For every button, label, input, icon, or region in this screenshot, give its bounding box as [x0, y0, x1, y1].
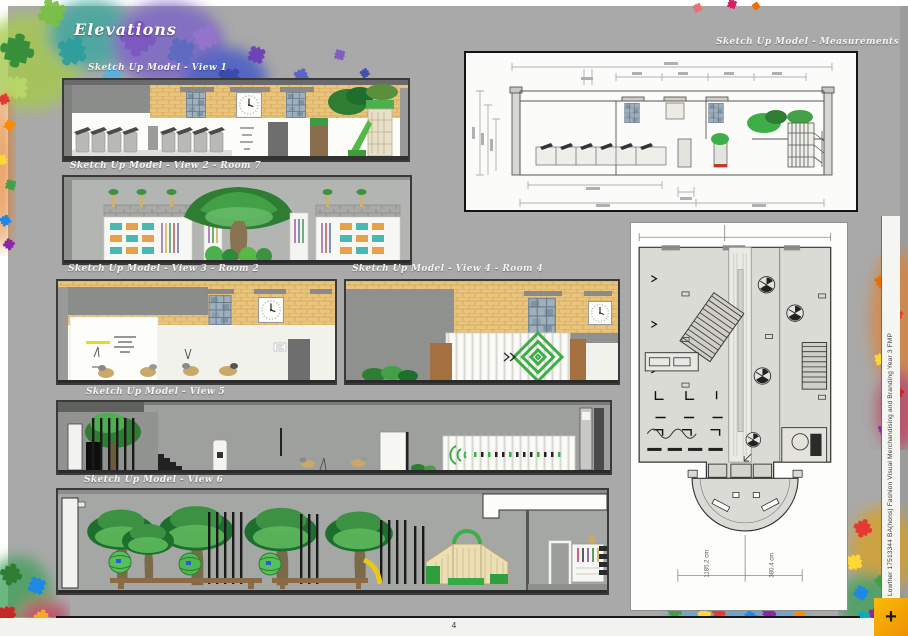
plan-building	[639, 245, 831, 478]
elevation-view5-panel	[56, 400, 612, 475]
page-number: 4	[0, 621, 908, 630]
floor-plan-sheet: 1185.2 cm 380.4 cm	[630, 222, 848, 611]
plan-dimension-1: 1185.2 cm	[703, 550, 710, 578]
elevation-view6-panel	[56, 488, 609, 595]
clock-icon	[237, 93, 262, 118]
tree-with-slats	[85, 413, 141, 470]
plan-right-stairs	[802, 343, 826, 390]
view2-elevation-drawing	[64, 177, 410, 263]
green-doorway	[711, 133, 729, 167]
label-view4: Sketch Up Model - View 4 - Room 4	[352, 264, 543, 274]
white-doorway	[550, 542, 570, 588]
zoom-plus-button[interactable]: +	[874, 598, 908, 636]
floor-plan-drawing: 1185.2 cm 380.4 cm	[631, 223, 847, 610]
measurements-drawing	[466, 53, 856, 210]
elevation-view3-panel	[56, 279, 337, 385]
clock-icon	[259, 298, 284, 323]
label-view5: Sketch Up Model - View 5	[86, 387, 225, 397]
right-margin-strip: e Lowther 17513344 BA(hons) Fashion Visu…	[881, 216, 900, 636]
portfolio-page: Elevations Sketch Up Model - View 1 Sket…	[0, 0, 908, 636]
label-view1: Sketch Up Model - View 1	[88, 63, 227, 73]
plan-dimension-2: 380.4 cm	[769, 553, 776, 578]
elevation-view4-panel	[344, 279, 620, 385]
label-view3: Sketch Up Model - View 3 - Room 2	[68, 264, 259, 274]
elevation-view2-panel	[62, 175, 412, 265]
bottom-margin: 4	[0, 618, 908, 636]
striped-wall-with-wave	[443, 436, 575, 472]
student-info-text: e Lowther 17513344 BA(hons) Fashion Visu…	[887, 333, 894, 602]
footer-rule	[56, 616, 860, 618]
elevation-view1-panel	[62, 78, 410, 162]
label-measurements: Sketch Up Model - Measurements	[716, 37, 899, 47]
view4-elevation-drawing	[346, 281, 618, 383]
label-view6: Sketch Up Model - View 6	[84, 475, 223, 485]
plan-toilet-room	[782, 428, 827, 462]
view5-elevation-drawing	[58, 402, 610, 473]
page-right-edge	[900, 6, 908, 617]
yellow-sign-stripe	[86, 341, 110, 344]
striped-display-wall	[446, 333, 570, 383]
clock-icon	[589, 302, 612, 325]
label-view2: Sketch Up Model - View 2 - Room 7	[70, 161, 261, 171]
view1-elevation-drawing	[64, 80, 408, 160]
view6-elevation-drawing	[58, 490, 607, 593]
view3-elevation-drawing	[58, 281, 335, 383]
page-title: Elevations	[74, 20, 177, 39]
measurements-panel	[464, 51, 858, 212]
plan-console	[645, 353, 698, 371]
